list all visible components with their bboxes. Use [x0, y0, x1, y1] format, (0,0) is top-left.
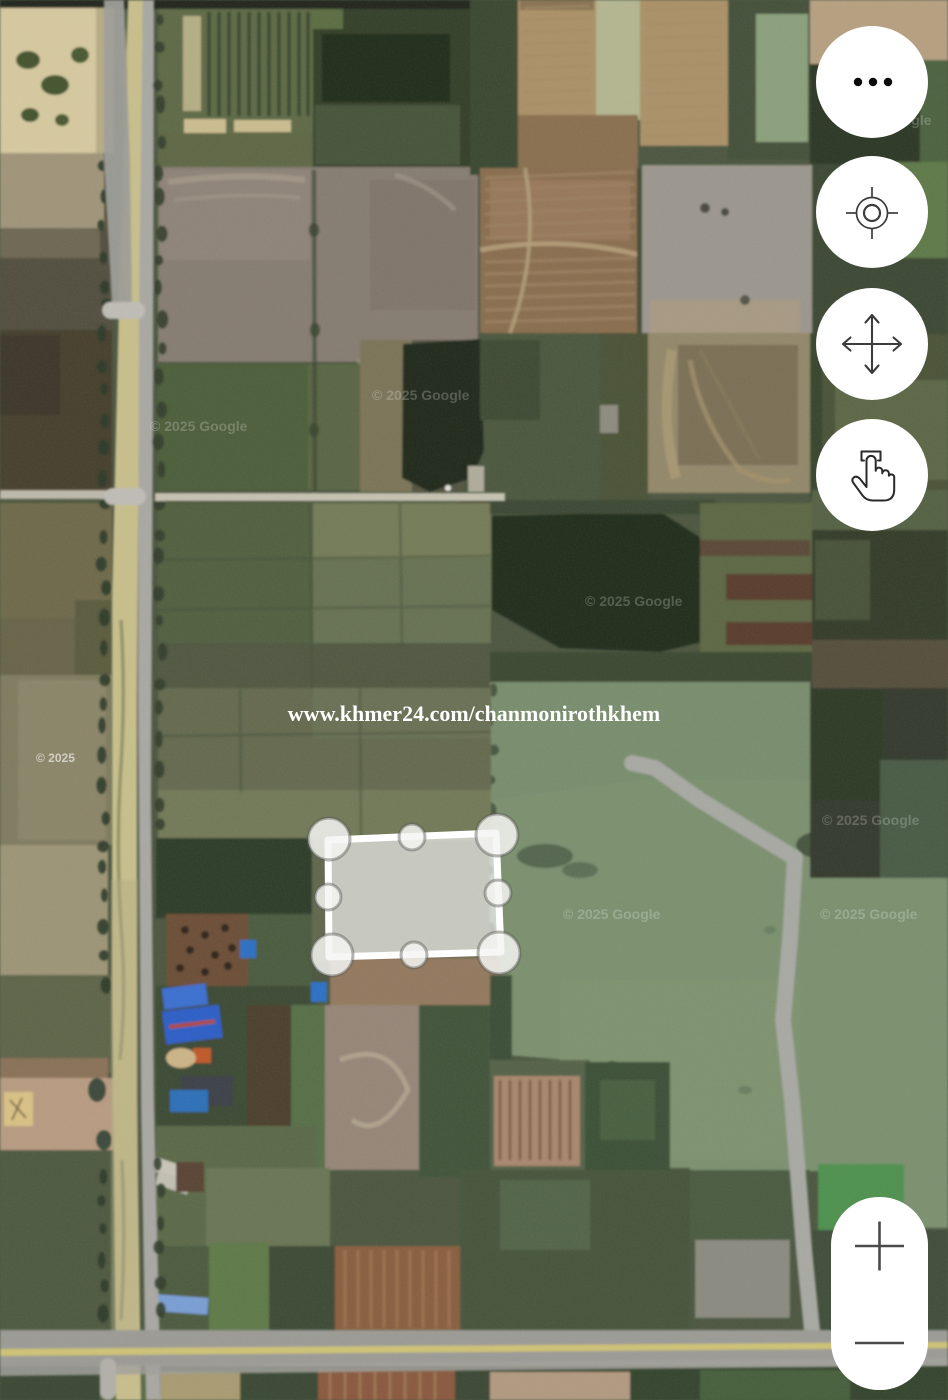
svg-text:www.khmer24.com/chanmonirothkh: www.khmer24.com/chanmonirothkhem [288, 701, 660, 726]
svg-text:© 2025: © 2025 [36, 751, 75, 765]
svg-text:© 2025 Google: © 2025 Google [563, 906, 661, 922]
svg-text:© 2025 Google: © 2025 Google [822, 812, 920, 828]
svg-text:© 2025 Google: © 2025 Google [820, 906, 918, 922]
svg-text:© 2025 Google: © 2025 Google [150, 418, 248, 434]
svg-text:© 2025 Google: © 2025 Google [585, 593, 683, 609]
svg-text:© 2025 Google: © 2025 Google [372, 387, 470, 403]
